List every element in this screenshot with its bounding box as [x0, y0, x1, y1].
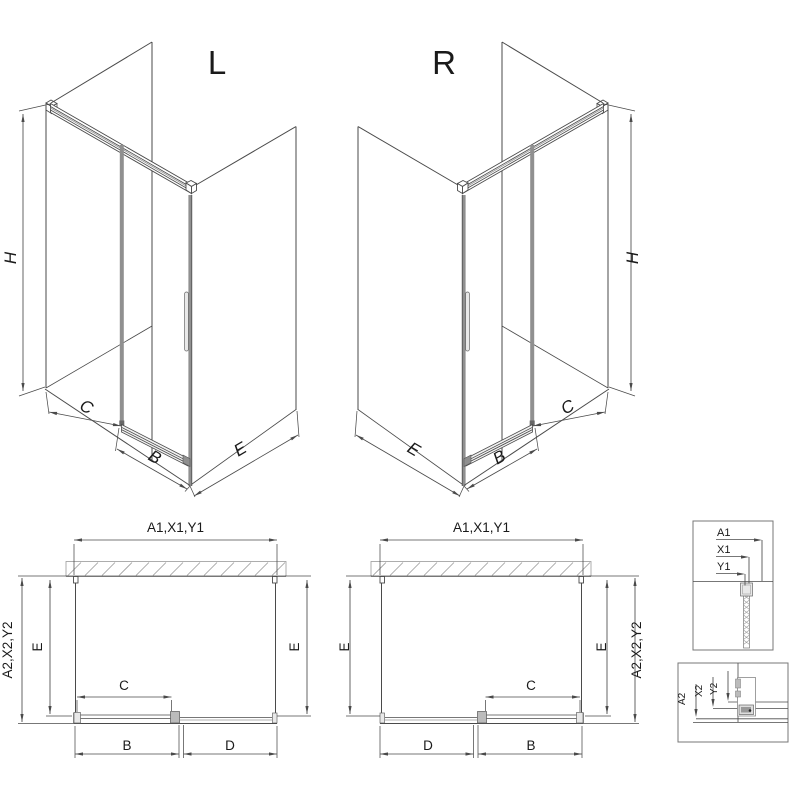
- plan-dim-label-width-left: A1,X1,Y1: [147, 520, 204, 535]
- detail-label-y1: Y1: [717, 561, 730, 573]
- plan-dim-label-c-left: C: [119, 678, 129, 693]
- dim-label-e-left: E: [230, 438, 250, 460]
- detail-bottom-wall-profile: [736, 678, 756, 717]
- detail-label-a1: A1: [717, 527, 730, 539]
- plan-dim-label-e-left-right: E: [337, 642, 352, 651]
- plan-geometry-left: [18, 538, 311, 758]
- plan-dim-label-e-inner-left: E: [30, 642, 45, 651]
- plan-dim-label-depth-outer-right: A2,X2,Y2: [629, 621, 644, 678]
- shower-enclosure-drawing: L H C B E R H C B E A1,X1,Y1 A2,X2,Y2 E …: [0, 0, 800, 800]
- iso-geometry-right: [355, 42, 635, 497]
- detail-box-bottom: A2 X2 Y2: [677, 663, 788, 742]
- view-title-left: L: [208, 44, 226, 81]
- iso-view-left: L H C B E: [1, 42, 299, 497]
- plan-view-left: A1,X1,Y1 A2,X2,Y2 E E C B D: [0, 520, 311, 758]
- detail-label-a2: A2: [677, 692, 688, 705]
- plan-dim-label-d-left: D: [225, 738, 235, 753]
- plan-dim-label-c-right: C: [526, 678, 536, 693]
- detail-top-glass-section: [741, 583, 753, 648]
- dim-label-b-left: B: [145, 446, 164, 468]
- detail-label-x2: X2: [694, 684, 705, 697]
- dim-label-h-left: H: [1, 251, 20, 264]
- plan-wall-hatch-right: [371, 562, 591, 577]
- dim-label-c-left: C: [77, 396, 97, 419]
- plan-dim-label-b-right: B: [526, 738, 535, 753]
- plan-dim-label-depth-outer-left: A2,X2,Y2: [0, 621, 15, 678]
- detail-bottom-screw-dot: [749, 709, 752, 712]
- plan-dim-label-b-left: B: [122, 738, 131, 753]
- plan-dim-label-e-right-left: E: [287, 642, 302, 651]
- dim-label-c-right: C: [558, 396, 578, 419]
- dim-label-h-right: H: [623, 251, 642, 264]
- iso-view-right: R H C B E: [355, 42, 642, 497]
- plan-view-right: A1,X1,Y1 E E A2,X2,Y2 C D B: [337, 520, 644, 758]
- detail-top-frame: [693, 521, 773, 650]
- dim-label-e-right: E: [404, 438, 424, 460]
- view-title-right: R: [432, 44, 456, 81]
- detail-bottom-frame: [678, 663, 788, 742]
- detail-box-top: A1 X1 Y1: [693, 521, 773, 650]
- detail-label-x1: X1: [717, 544, 730, 556]
- iso-geometry-left: [19, 42, 299, 497]
- plan-dim-label-d-right: D: [423, 738, 433, 753]
- technical-drawing-page: L H C B E R H C B E A1,X1,Y1 A2,X2,Y2 E …: [0, 0, 800, 800]
- plan-wall-hatch-left: [66, 562, 286, 577]
- plan-dim-label-e-inner-right: E: [594, 642, 609, 651]
- detail-label-y2: Y2: [709, 682, 720, 695]
- plan-dim-label-width-right: A1,X1,Y1: [453, 520, 510, 535]
